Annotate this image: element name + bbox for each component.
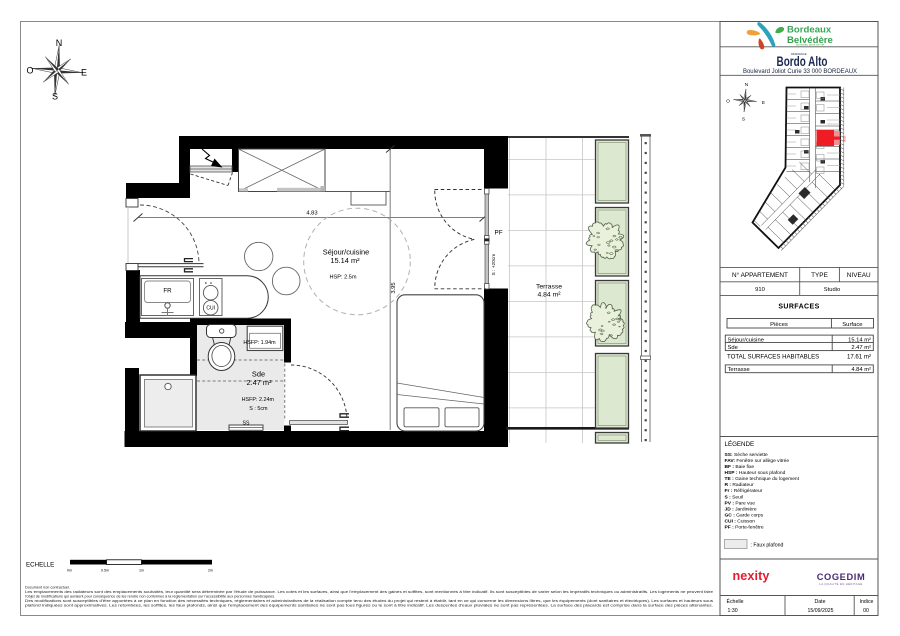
svg-text:FR: FR	[163, 288, 172, 295]
svg-text:LA QUALITÉ EN HÉRITAGE: LA QUALITÉ EN HÉRITAGE	[819, 581, 862, 586]
svg-text:Studio: Studio	[824, 287, 840, 293]
svg-text:S: S	[52, 92, 58, 102]
svg-text:: Faux plafond: : Faux plafond	[751, 543, 784, 549]
svg-text:SURFACES: SURFACES	[778, 304, 819, 311]
svg-text:2m: 2m	[208, 569, 213, 573]
svg-text:00: 00	[863, 608, 869, 614]
svg-text:N: N	[56, 38, 63, 48]
svg-text:2.47 m²: 2.47 m²	[851, 345, 871, 351]
svg-text:S : Seuil: S : Seuil	[725, 494, 743, 500]
svg-text:15.14 m²: 15.14 m²	[330, 256, 360, 265]
svg-text:COGEDIM: COGEDIM	[817, 572, 866, 582]
svg-text:15/09/2025: 15/09/2025	[808, 608, 834, 614]
svg-text:PF: PF	[495, 230, 503, 237]
svg-text:S : 5cm: S : 5cm	[249, 406, 268, 412]
svg-text:Des modifications sont suscept: Des modifications sont susceptibles d'êt…	[25, 599, 713, 603]
svg-text:TE : Gaine technique du logeme: TE : Gaine technique du logement	[725, 476, 800, 482]
svg-text:Pièces: Pièces	[770, 322, 788, 328]
svg-text:1:30: 1:30	[728, 608, 738, 614]
svg-text:O: O	[26, 66, 33, 76]
svg-text:NIVEAU: NIVEAU	[847, 272, 871, 279]
svg-text:N: N	[745, 82, 749, 88]
svg-text:PV : Pare vue: PV : Pare vue	[725, 500, 756, 506]
svg-text:HSP : Hauteur sous plafond: HSP : Hauteur sous plafond	[725, 470, 786, 476]
svg-text:Document non contractuel.: Document non contractuel.	[25, 586, 70, 590]
svg-text:Terrasse: Terrasse	[728, 367, 750, 373]
svg-text:Surface: Surface	[842, 322, 863, 328]
svg-text:Fr : Réfrigérateur: Fr : Réfrigérateur	[725, 488, 763, 494]
svg-text:15.14 m²: 15.14 m²	[848, 337, 871, 343]
svg-text:4.84 m²: 4.84 m²	[851, 367, 871, 373]
svg-text:JD : Jardinière: JD : Jardinière	[725, 506, 757, 512]
svg-text:Nouveau point de vie: Nouveau point de vie	[796, 43, 825, 47]
svg-text:plafond indiquées sont approxi: plafond indiquées sont approximatives. L…	[25, 604, 713, 608]
svg-text:4.84 m²: 4.84 m²	[537, 292, 561, 299]
svg-text:FAV: Fenêtre sur allège vitrée: FAV: Fenêtre sur allège vitrée	[725, 458, 790, 464]
svg-text:N° APPARTEMENT: N° APPARTEMENT	[732, 271, 788, 279]
svg-text:SS: Sèche serviette: SS: Sèche serviette	[725, 452, 769, 458]
svg-text:Bordeaux: Bordeaux	[787, 25, 832, 36]
svg-text:HSP: 2.5m: HSP: 2.5m	[329, 275, 356, 281]
svg-text:Bordo Alto: Bordo Alto	[777, 53, 828, 69]
svg-text:ECHELLE: ECHELLE	[26, 562, 54, 569]
svg-text:l'objet de modifications qui a: l'objet de modifications qui auraient po…	[25, 595, 275, 599]
svg-text:4.83: 4.83	[306, 211, 317, 217]
svg-text:E: E	[81, 68, 87, 78]
svg-text:O: O	[726, 99, 730, 105]
svg-text:Terrasse: Terrasse	[536, 284, 562, 291]
svg-text:910: 910	[843, 136, 847, 142]
svg-text:TYPE: TYPE	[811, 272, 828, 279]
svg-text:0m: 0m	[67, 569, 72, 573]
svg-text:S : +20cm: S : +20cm	[491, 254, 497, 276]
svg-text:HSFP: 2.24m: HSFP: 2.24m	[242, 397, 275, 403]
svg-text:nexity: nexity	[733, 569, 770, 583]
svg-text:GC : Garde corps: GC : Garde corps	[725, 512, 764, 518]
svg-text:Boulevard Joliot Curie 33 000: Boulevard Joliot Curie 33 000 BORDEAUX	[743, 69, 857, 75]
svg-text:0.5m: 0.5m	[101, 569, 109, 573]
svg-text:HSFP: 1.94m: HSFP: 1.94m	[243, 340, 276, 346]
svg-text:PF : Porte-fenêtre: PF : Porte-fenêtre	[725, 525, 764, 531]
svg-text:CUI: CUI	[206, 306, 215, 312]
svg-text:Les emplacements des radiateur: Les emplacements des radiateurs sont des…	[25, 590, 713, 594]
svg-text:Échelle: Échelle	[727, 598, 744, 605]
svg-text:910: 910	[755, 287, 765, 293]
svg-text:Date: Date	[815, 599, 826, 605]
svg-text:CUI : Cuisson: CUI : Cuisson	[725, 518, 756, 524]
svg-text:S: S	[742, 117, 745, 123]
svg-text:1m: 1m	[139, 569, 144, 573]
svg-text:BF : Baie fixe: BF : Baie fixe	[725, 464, 755, 470]
svg-text:LÉGENDE: LÉGENDE	[725, 441, 755, 448]
svg-text:17.61 m²: 17.61 m²	[847, 354, 871, 361]
svg-text:TOTAL SURFACES HABITABLES: TOTAL SURFACES HABITABLES	[727, 354, 819, 361]
svg-text:Indice: Indice	[860, 599, 874, 605]
svg-text:Séjour/cuisine: Séjour/cuisine	[728, 337, 764, 343]
svg-text:Sde: Sde	[728, 345, 738, 351]
svg-text:R : Radiateur: R : Radiateur	[725, 482, 754, 488]
svg-text:2.47 m²: 2.47 m²	[246, 378, 272, 387]
svg-text:3.95: 3.95	[391, 282, 397, 293]
svg-text:E: E	[762, 100, 765, 106]
